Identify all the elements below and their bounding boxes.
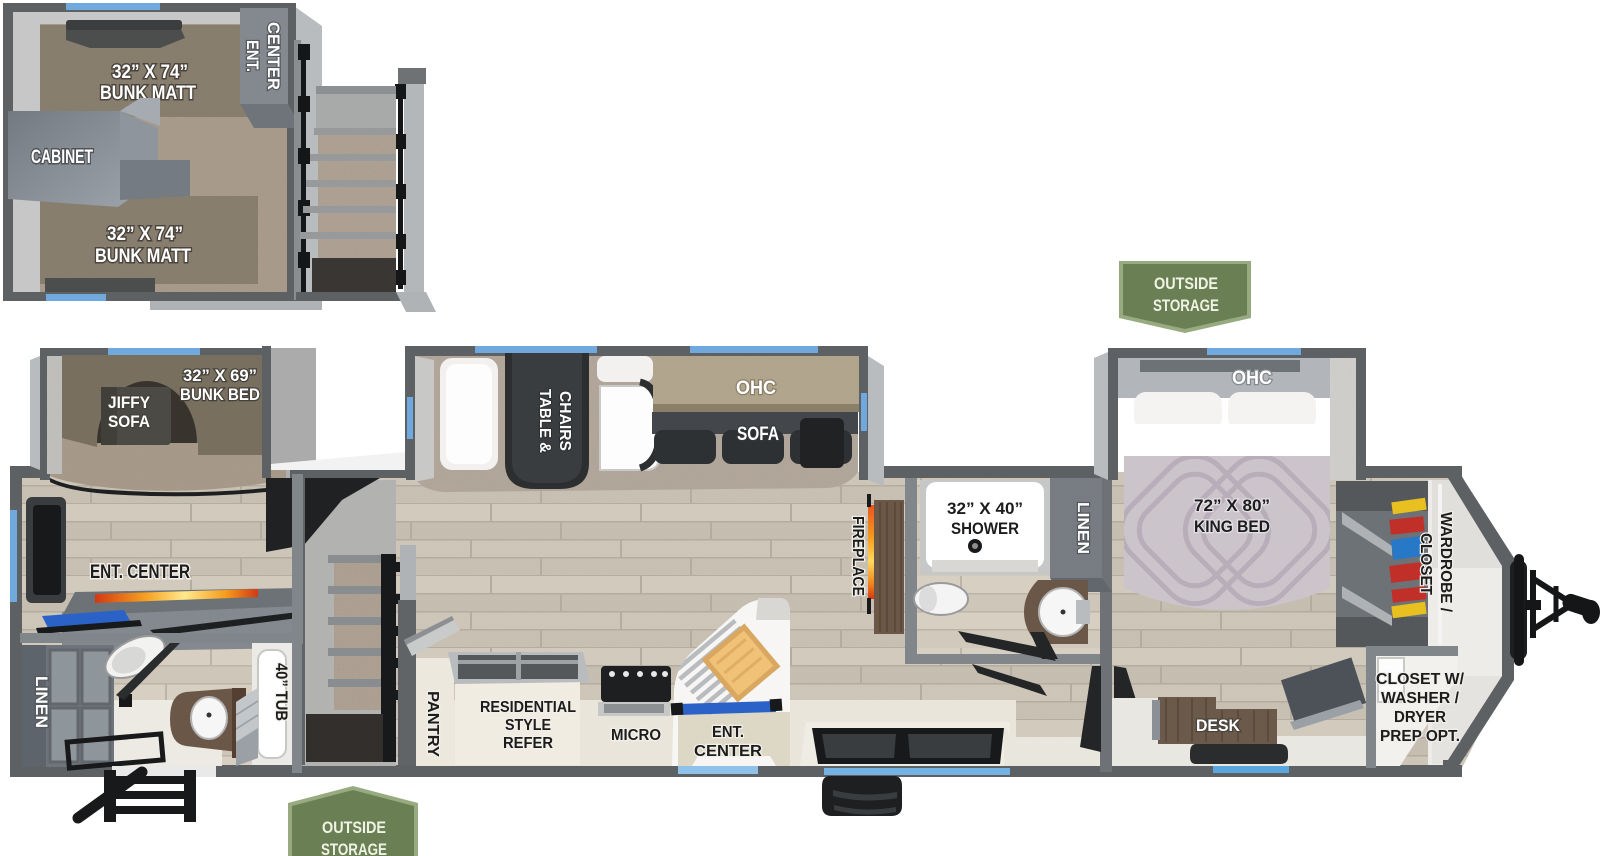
- svg-text:RESIDENTIAL: RESIDENTIAL: [480, 699, 576, 716]
- svg-text:MICRO: MICRO: [611, 727, 661, 744]
- svg-text:PANTRY: PANTRY: [424, 691, 441, 757]
- svg-text:BUNK BED: BUNK BED: [180, 385, 260, 404]
- svg-text:STORAGE: STORAGE: [1153, 296, 1219, 315]
- svg-text:SOFA: SOFA: [737, 424, 779, 445]
- svg-text:ENT.: ENT.: [712, 724, 744, 741]
- svg-text:WASHER /: WASHER /: [1381, 690, 1460, 707]
- svg-text:72” X 80”: 72” X 80”: [1194, 496, 1270, 515]
- svg-text:DESK: DESK: [1196, 716, 1241, 735]
- svg-text:40” TUB: 40” TUB: [272, 663, 291, 721]
- svg-text:32” X 74”: 32” X 74”: [112, 62, 188, 83]
- svg-text:CHAIRS: CHAIRS: [556, 391, 573, 451]
- svg-text:SHOWER: SHOWER: [951, 519, 1019, 538]
- svg-text:32” X 74”: 32” X 74”: [107, 224, 183, 245]
- svg-text:TABLE &: TABLE &: [536, 389, 553, 453]
- svg-text:OUTSIDE: OUTSIDE: [1154, 274, 1218, 293]
- svg-text:CLOSET W/: CLOSET W/: [1376, 671, 1465, 688]
- svg-text:ENT. CENTER: ENT. CENTER: [90, 562, 190, 583]
- svg-text:DRYER: DRYER: [1394, 709, 1446, 726]
- svg-text:SOFA: SOFA: [108, 412, 150, 431]
- svg-text:32” X 40”: 32” X 40”: [947, 499, 1023, 518]
- svg-text:LINEN: LINEN: [1074, 502, 1091, 554]
- svg-text:CLOSET: CLOSET: [1417, 533, 1434, 595]
- svg-text:32” X 69”: 32” X 69”: [183, 366, 257, 385]
- svg-text:REFER: REFER: [503, 735, 553, 752]
- svg-text:CENTER: CENTER: [264, 22, 283, 90]
- svg-text:ENT.: ENT.: [243, 40, 262, 72]
- svg-text:KING BED: KING BED: [1194, 517, 1270, 536]
- svg-text:CENTER: CENTER: [694, 743, 762, 760]
- svg-text:FIREPLACE: FIREPLACE: [849, 516, 866, 596]
- svg-text:BUNK MATT: BUNK MATT: [95, 246, 191, 267]
- svg-text:CABINET: CABINET: [31, 147, 93, 168]
- svg-text:PREP OPT.: PREP OPT.: [1380, 728, 1460, 745]
- svg-text:WARDROBE /: WARDROBE /: [1437, 512, 1454, 613]
- svg-text:STORAGE: STORAGE: [321, 840, 387, 856]
- svg-text:LINEN: LINEN: [32, 676, 51, 728]
- svg-text:OUTSIDE: OUTSIDE: [322, 818, 386, 837]
- svg-text:STYLE: STYLE: [505, 717, 551, 734]
- svg-text:OHC: OHC: [1232, 368, 1272, 389]
- svg-text:JIFFY: JIFFY: [108, 393, 151, 412]
- svg-text:OHC: OHC: [736, 378, 776, 399]
